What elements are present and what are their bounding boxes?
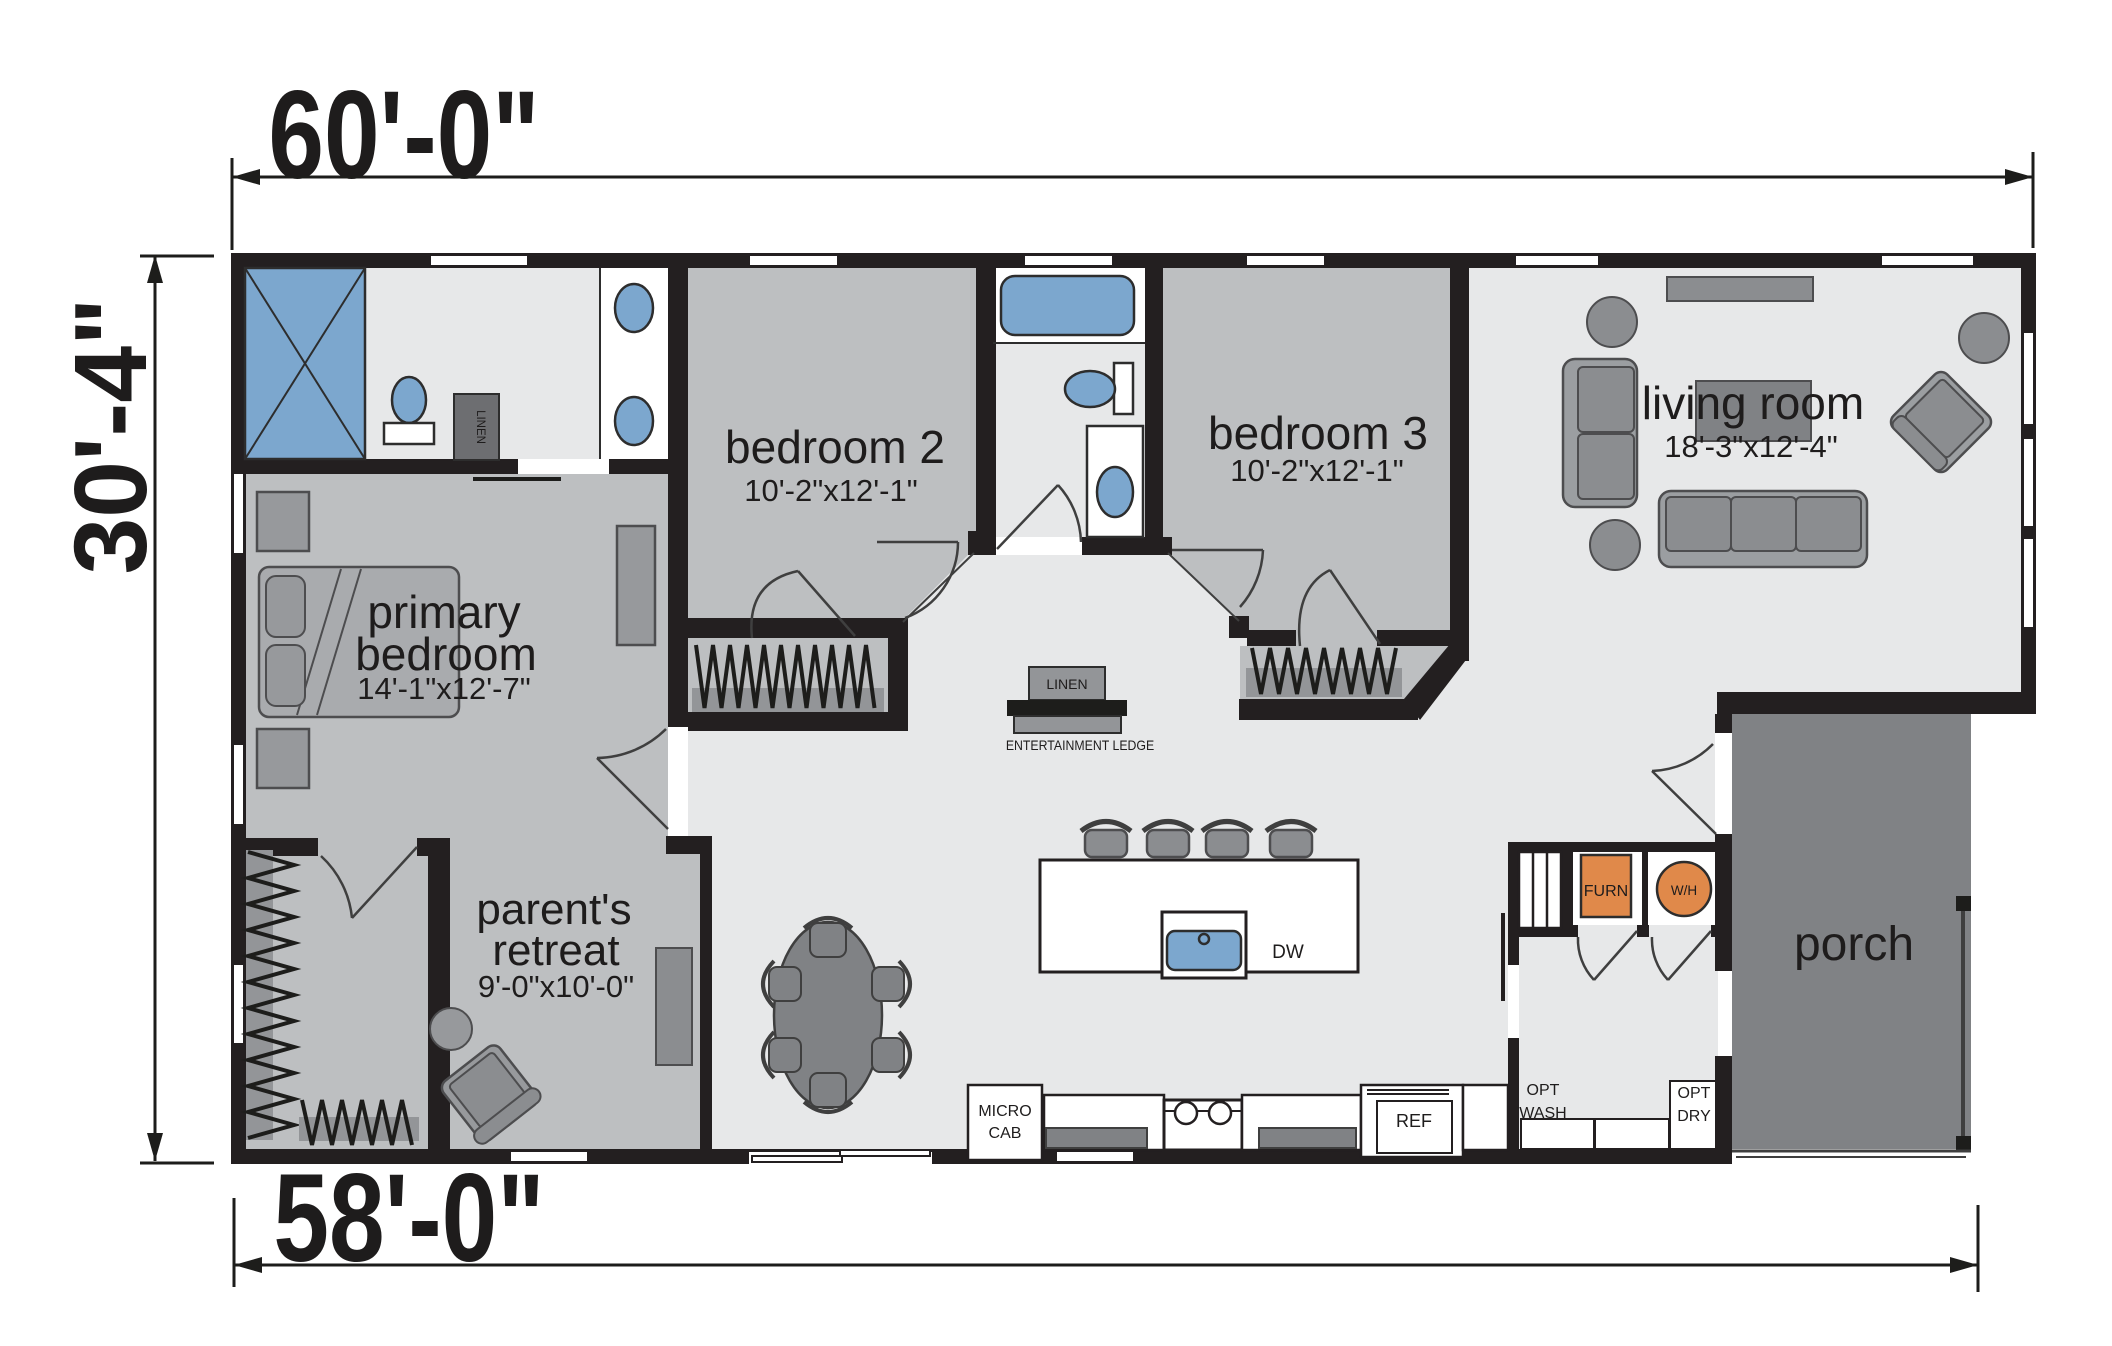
svg-text:LINEN: LINEN [1046,676,1087,692]
svg-text:DRY: DRY [1677,1108,1711,1125]
svg-text:10'-2"x12'-1": 10'-2"x12'-1" [744,473,917,508]
svg-text:60'-0": 60'-0" [268,65,539,204]
svg-text:LINEN: LINEN [474,410,486,444]
svg-text:living room: living room [1642,377,1864,429]
svg-text:MICRO: MICRO [978,1103,1031,1120]
svg-text:porch: porch [1794,918,1914,971]
svg-text:CAB: CAB [989,1125,1022,1142]
svg-text:REF: REF [1396,1111,1432,1131]
svg-text:9'-0"x10'-0": 9'-0"x10'-0" [478,969,634,1004]
svg-text:14'-1"x12'-7": 14'-1"x12'-7" [357,671,530,706]
svg-text:30'-4": 30'-4" [53,298,168,575]
svg-text:FURN: FURN [1584,883,1628,900]
svg-text:bedroom 2: bedroom 2 [725,421,945,473]
svg-text:58'-0": 58'-0" [273,1148,544,1287]
svg-text:10'-2"x12'-1": 10'-2"x12'-1" [1230,453,1403,488]
svg-text:OPT: OPT [1678,1085,1711,1102]
svg-text:OPT: OPT [1527,1082,1560,1099]
svg-text:DW: DW [1272,942,1304,963]
svg-text:18'-3"x12'-4": 18'-3"x12'-4" [1664,429,1837,464]
svg-text:bedroom 3: bedroom 3 [1208,407,1428,459]
svg-text:ENTERTAINMENT LEDGE: ENTERTAINMENT LEDGE [1006,737,1155,753]
svg-text:retreat: retreat [492,926,619,975]
svg-text:W/H: W/H [1671,883,1697,898]
